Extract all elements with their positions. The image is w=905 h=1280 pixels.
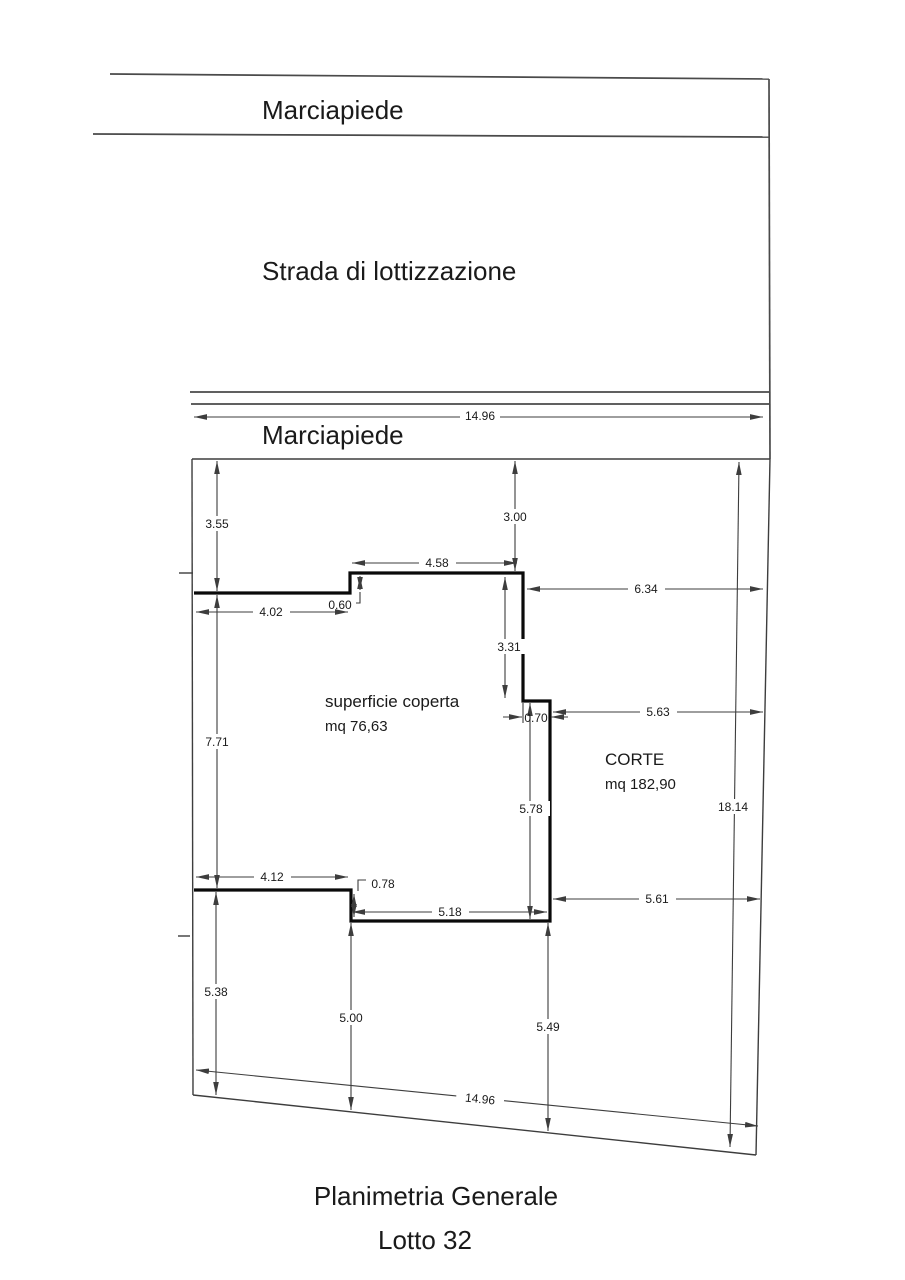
lot-left-boundary — [192, 459, 193, 1095]
sidewalk-lot-label: Marciapiede — [262, 420, 404, 450]
dimension-lines — [194, 417, 763, 1147]
covered-surface-title: superficie coperta — [325, 692, 460, 711]
dim-gap-right-lower: 5.61 — [645, 892, 669, 906]
dim-side-left-middle: 7.71 — [205, 735, 229, 749]
dim-setback-front: 3.00 — [503, 510, 527, 524]
dim-top-edge-upper: 4.58 — [425, 556, 449, 570]
dim-side-left-upper: 3.55 — [205, 517, 229, 531]
plan-labels: Marciapiede Strada di lottizzazione Marc… — [262, 95, 676, 793]
sidewalk-top-label: Marciapiede — [262, 95, 404, 125]
dim-side-right: 18.14 — [718, 800, 748, 814]
site-plan-drawing: 14.96 3.55 7.71 5.38 3.00 4.02 0.60 4.58… — [0, 0, 905, 1280]
dim-side-left-lower: 5.38 — [204, 985, 228, 999]
dim-gap-right-upper: 6.34 — [634, 582, 658, 596]
street-right-edge — [769, 79, 770, 459]
dim-top-step: 0.60 — [328, 598, 352, 612]
dim-right-step: 0.70 — [524, 711, 548, 725]
dim-bottom-edge: 5.18 — [438, 905, 462, 919]
dim-top-edge-left: 4.02 — [259, 605, 283, 619]
dim-top-step-leader — [356, 592, 360, 603]
dimension-text-backers — [198, 408, 756, 1034]
dim-rear-width-group: 14.96 — [455, 1089, 504, 1110]
sidewalk-top-lower-edge — [93, 134, 769, 137]
dim-bottom-step: 0.78 — [371, 877, 395, 891]
dim-right-edge-lower: 5.78 — [519, 802, 543, 816]
court-title: CORTE — [605, 750, 664, 769]
lot-right-boundary — [756, 459, 770, 1155]
dimension-texts: 14.96 3.55 7.71 5.38 3.00 4.02 0.60 4.58… — [204, 409, 748, 1034]
caption: Planimetria Generale Lotto 32 — [314, 1181, 558, 1255]
court-area: mq 182,90 — [605, 776, 676, 793]
sidewalk-top-upper-edge — [110, 74, 769, 79]
dim-front-width: 14.96 — [465, 409, 495, 423]
dim-gap-right-middle: 5.63 — [646, 705, 670, 719]
dim-bottom-step-leader — [358, 880, 366, 891]
road-label: Strada di lottizzazione — [262, 256, 516, 286]
caption-subtitle: Lotto 32 — [378, 1225, 472, 1255]
dim-right-edge-upper: 3.31 — [497, 640, 521, 654]
dim-rear-gap-right: 5.49 — [536, 1020, 560, 1034]
building-outline — [194, 573, 550, 921]
dim-bottom-edge-left: 4.12 — [260, 870, 284, 884]
dim-rear-gap-left: 5.00 — [339, 1011, 363, 1025]
caption-title: Planimetria Generale — [314, 1181, 558, 1211]
covered-surface-area: mq 76,63 — [325, 718, 388, 735]
site-plan-page: 14.96 3.55 7.71 5.38 3.00 4.02 0.60 4.58… — [0, 0, 905, 1280]
